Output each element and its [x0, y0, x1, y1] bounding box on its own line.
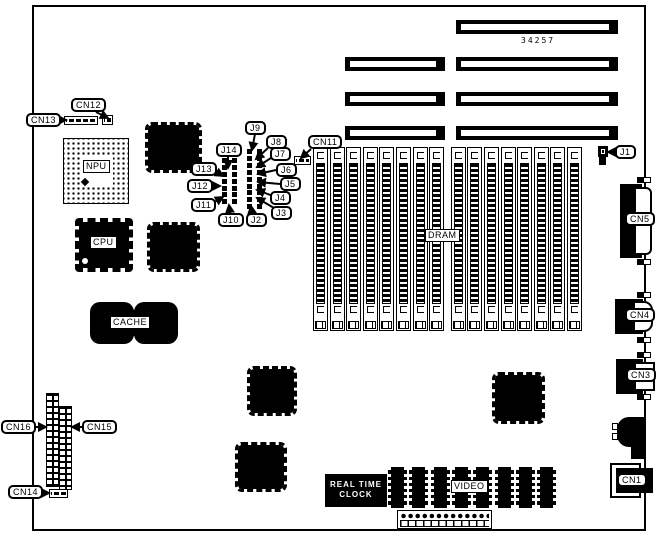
npu-label: NPU — [83, 160, 110, 173]
label-j1: J1 — [615, 145, 636, 159]
motherboard-diagram: 34257 DRAM NPU CPU CACHE REAL TIME CLOCK… — [0, 0, 659, 538]
label-j3: J3 — [271, 206, 292, 220]
cpu-label: CPU — [90, 236, 117, 249]
label-cn5: CN5 — [625, 212, 655, 226]
label-j10: J10 — [218, 213, 244, 227]
video-label: VIDEO — [451, 480, 488, 493]
label-j12: J12 — [187, 179, 213, 193]
label-j6: J6 — [276, 163, 297, 177]
label-j7: J7 — [270, 147, 291, 161]
label-j4: J4 — [270, 191, 291, 205]
label-cn11: CN11 — [308, 135, 342, 149]
label-cn4: CN4 — [625, 308, 655, 322]
label-cn14: CN14 — [8, 485, 43, 499]
label-cn16: CN16 — [1, 420, 36, 434]
label-cn3: CN3 — [626, 368, 656, 382]
part-number: 34257 — [521, 36, 555, 45]
label-j14: J14 — [216, 143, 242, 157]
cache-label: CACHE — [110, 316, 150, 329]
label-cn1: CN1 — [617, 473, 647, 487]
label-j5: J5 — [280, 177, 301, 191]
label-cn15: CN15 — [82, 420, 117, 434]
dram-label: DRAM — [425, 229, 460, 242]
label-j13: J13 — [191, 162, 217, 176]
label-cn12: CN12 — [71, 98, 106, 112]
leader-lines — [0, 0, 659, 538]
label-j11: J11 — [191, 198, 216, 212]
label-j2: J2 — [246, 213, 267, 227]
label-j9: J9 — [245, 121, 266, 135]
label-cn13: CN13 — [26, 113, 61, 127]
